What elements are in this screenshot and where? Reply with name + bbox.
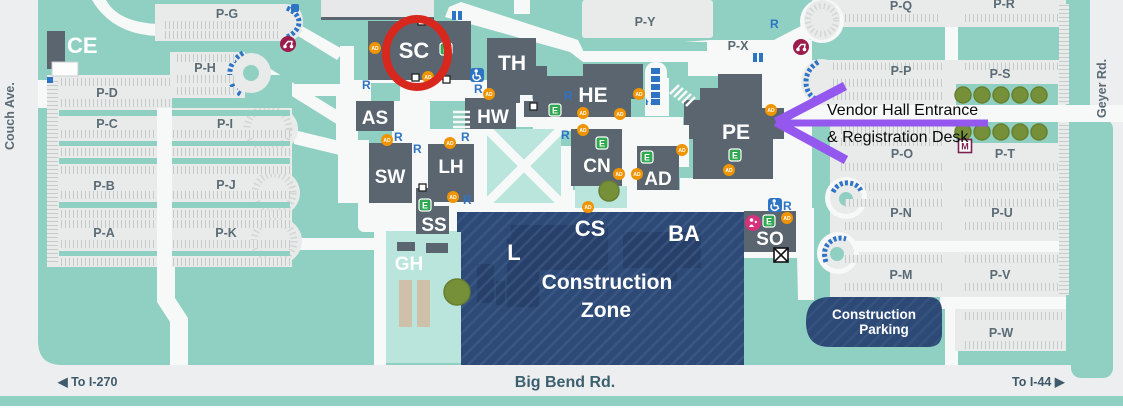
svg-text:P-N: P-N [890,206,912,220]
svg-text:SW: SW [375,167,406,188]
svg-text:P-M: P-M [890,268,913,282]
svg-text:P-U: P-U [991,206,1013,220]
svg-text:P-J: P-J [216,178,236,192]
svg-text:& Registration Desk: & Registration Desk [827,129,969,146]
svg-text:HE: HE [578,84,607,107]
svg-text:R: R [461,130,470,144]
svg-text:P-R: P-R [993,0,1015,11]
svg-text:P-A: P-A [93,226,115,240]
svg-text:BA: BA [668,221,700,246]
svg-text:AD: AD [371,46,379,52]
svg-text:R: R [564,89,573,103]
svg-text:P-D: P-D [96,86,118,100]
svg-text:Parking: Parking [859,322,909,337]
svg-text:HW: HW [477,107,509,128]
svg-text:R: R [362,78,371,92]
svg-text:R: R [770,17,779,31]
svg-text:Geyer Rd.: Geyer Rd. [1095,59,1109,118]
svg-text:Vendor Hall Entrance: Vendor Hall Entrance [827,102,978,119]
svg-text:SO: SO [756,229,783,250]
svg-text:CS: CS [575,216,606,241]
svg-text:Big Bend Rd.: Big Bend Rd. [515,374,615,391]
svg-text:AS: AS [362,108,388,129]
svg-text:P-X: P-X [728,39,750,53]
svg-text:P-P: P-P [891,64,912,78]
svg-text:◀ To I-270: ◀ To I-270 [57,375,117,389]
svg-text:P-C: P-C [96,117,118,131]
svg-text:Construction: Construction [832,307,916,322]
svg-text:SC: SC [399,38,430,63]
svg-text:LH: LH [438,157,463,178]
svg-text:R: R [413,142,422,156]
svg-text:AD: AD [644,169,671,190]
svg-text:To I-44 ▶: To I-44 ▶ [1012,375,1066,389]
svg-text:P-Q: P-Q [890,0,913,13]
svg-text:P-H: P-H [194,61,216,75]
svg-text:P-O: P-O [891,147,914,161]
svg-text:R: R [474,82,483,96]
svg-text:P-V: P-V [990,268,1012,282]
svg-text:R: R [561,128,570,142]
svg-text:P-W: P-W [989,326,1014,340]
svg-text:PE: PE [722,121,750,144]
svg-text:Zone: Zone [581,299,631,322]
svg-text:GH: GH [395,254,424,275]
svg-text:R: R [394,130,403,144]
svg-text:TH: TH [498,52,526,75]
svg-text:SS: SS [421,215,446,236]
svg-text:P-S: P-S [990,67,1011,81]
svg-text:L: L [507,240,520,265]
svg-text:Construction: Construction [542,271,673,294]
svg-text:P-B: P-B [93,179,115,193]
svg-text:CE: CE [67,33,98,58]
svg-text:CN: CN [583,156,610,177]
svg-text:P-K: P-K [215,226,237,240]
svg-text:P-Y: P-Y [635,15,657,29]
svg-text:P-T: P-T [995,147,1016,161]
svg-text:P-I: P-I [217,117,233,131]
svg-text:R: R [463,193,472,207]
svg-text:Couch Ave.: Couch Ave. [3,82,17,150]
svg-text:P-G: P-G [216,7,238,21]
svg-text:R: R [783,199,792,213]
